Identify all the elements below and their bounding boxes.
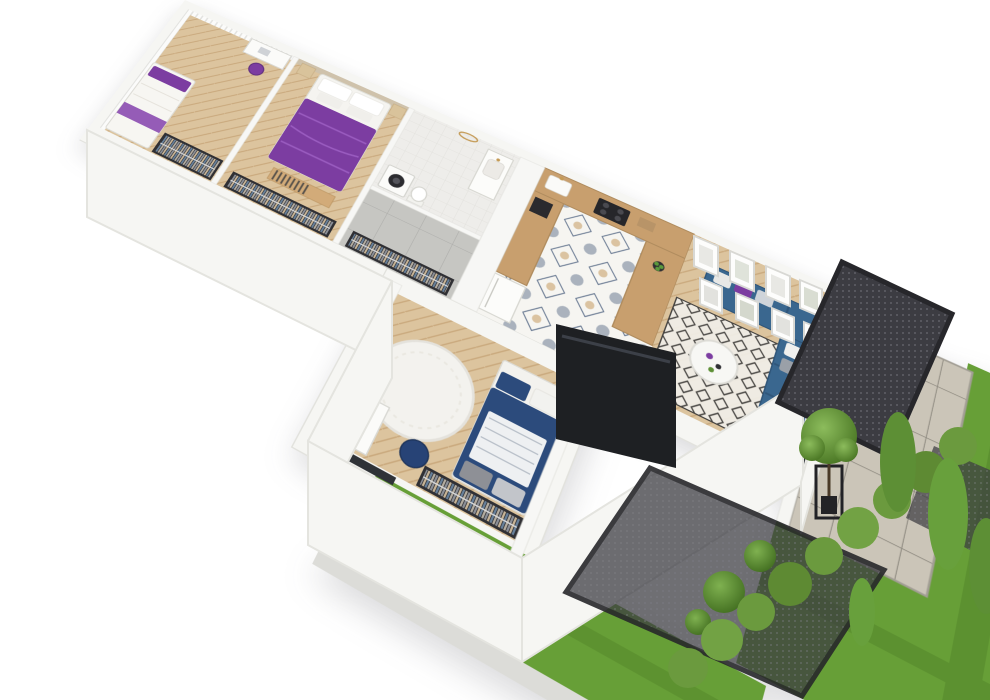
hedge-bush — [668, 648, 708, 688]
cypress-tree — [880, 412, 916, 512]
hedge-bush — [837, 507, 879, 549]
hedge-bush — [737, 593, 775, 631]
apartment-render-stage — [0, 0, 990, 700]
bar-southwest-face — [87, 130, 392, 368]
gallery-wall-frames — [694, 236, 824, 354]
planter-pot — [821, 496, 837, 514]
hedge-bush — [805, 537, 843, 575]
hedge-bush — [701, 619, 743, 661]
wall-tv — [556, 324, 676, 468]
cypress-tree — [849, 578, 875, 646]
wing-south-face — [308, 441, 522, 662]
overlay-svg — [0, 0, 990, 700]
hedge-bush — [768, 562, 812, 606]
bush — [744, 540, 776, 572]
cypress-tree — [928, 458, 968, 570]
